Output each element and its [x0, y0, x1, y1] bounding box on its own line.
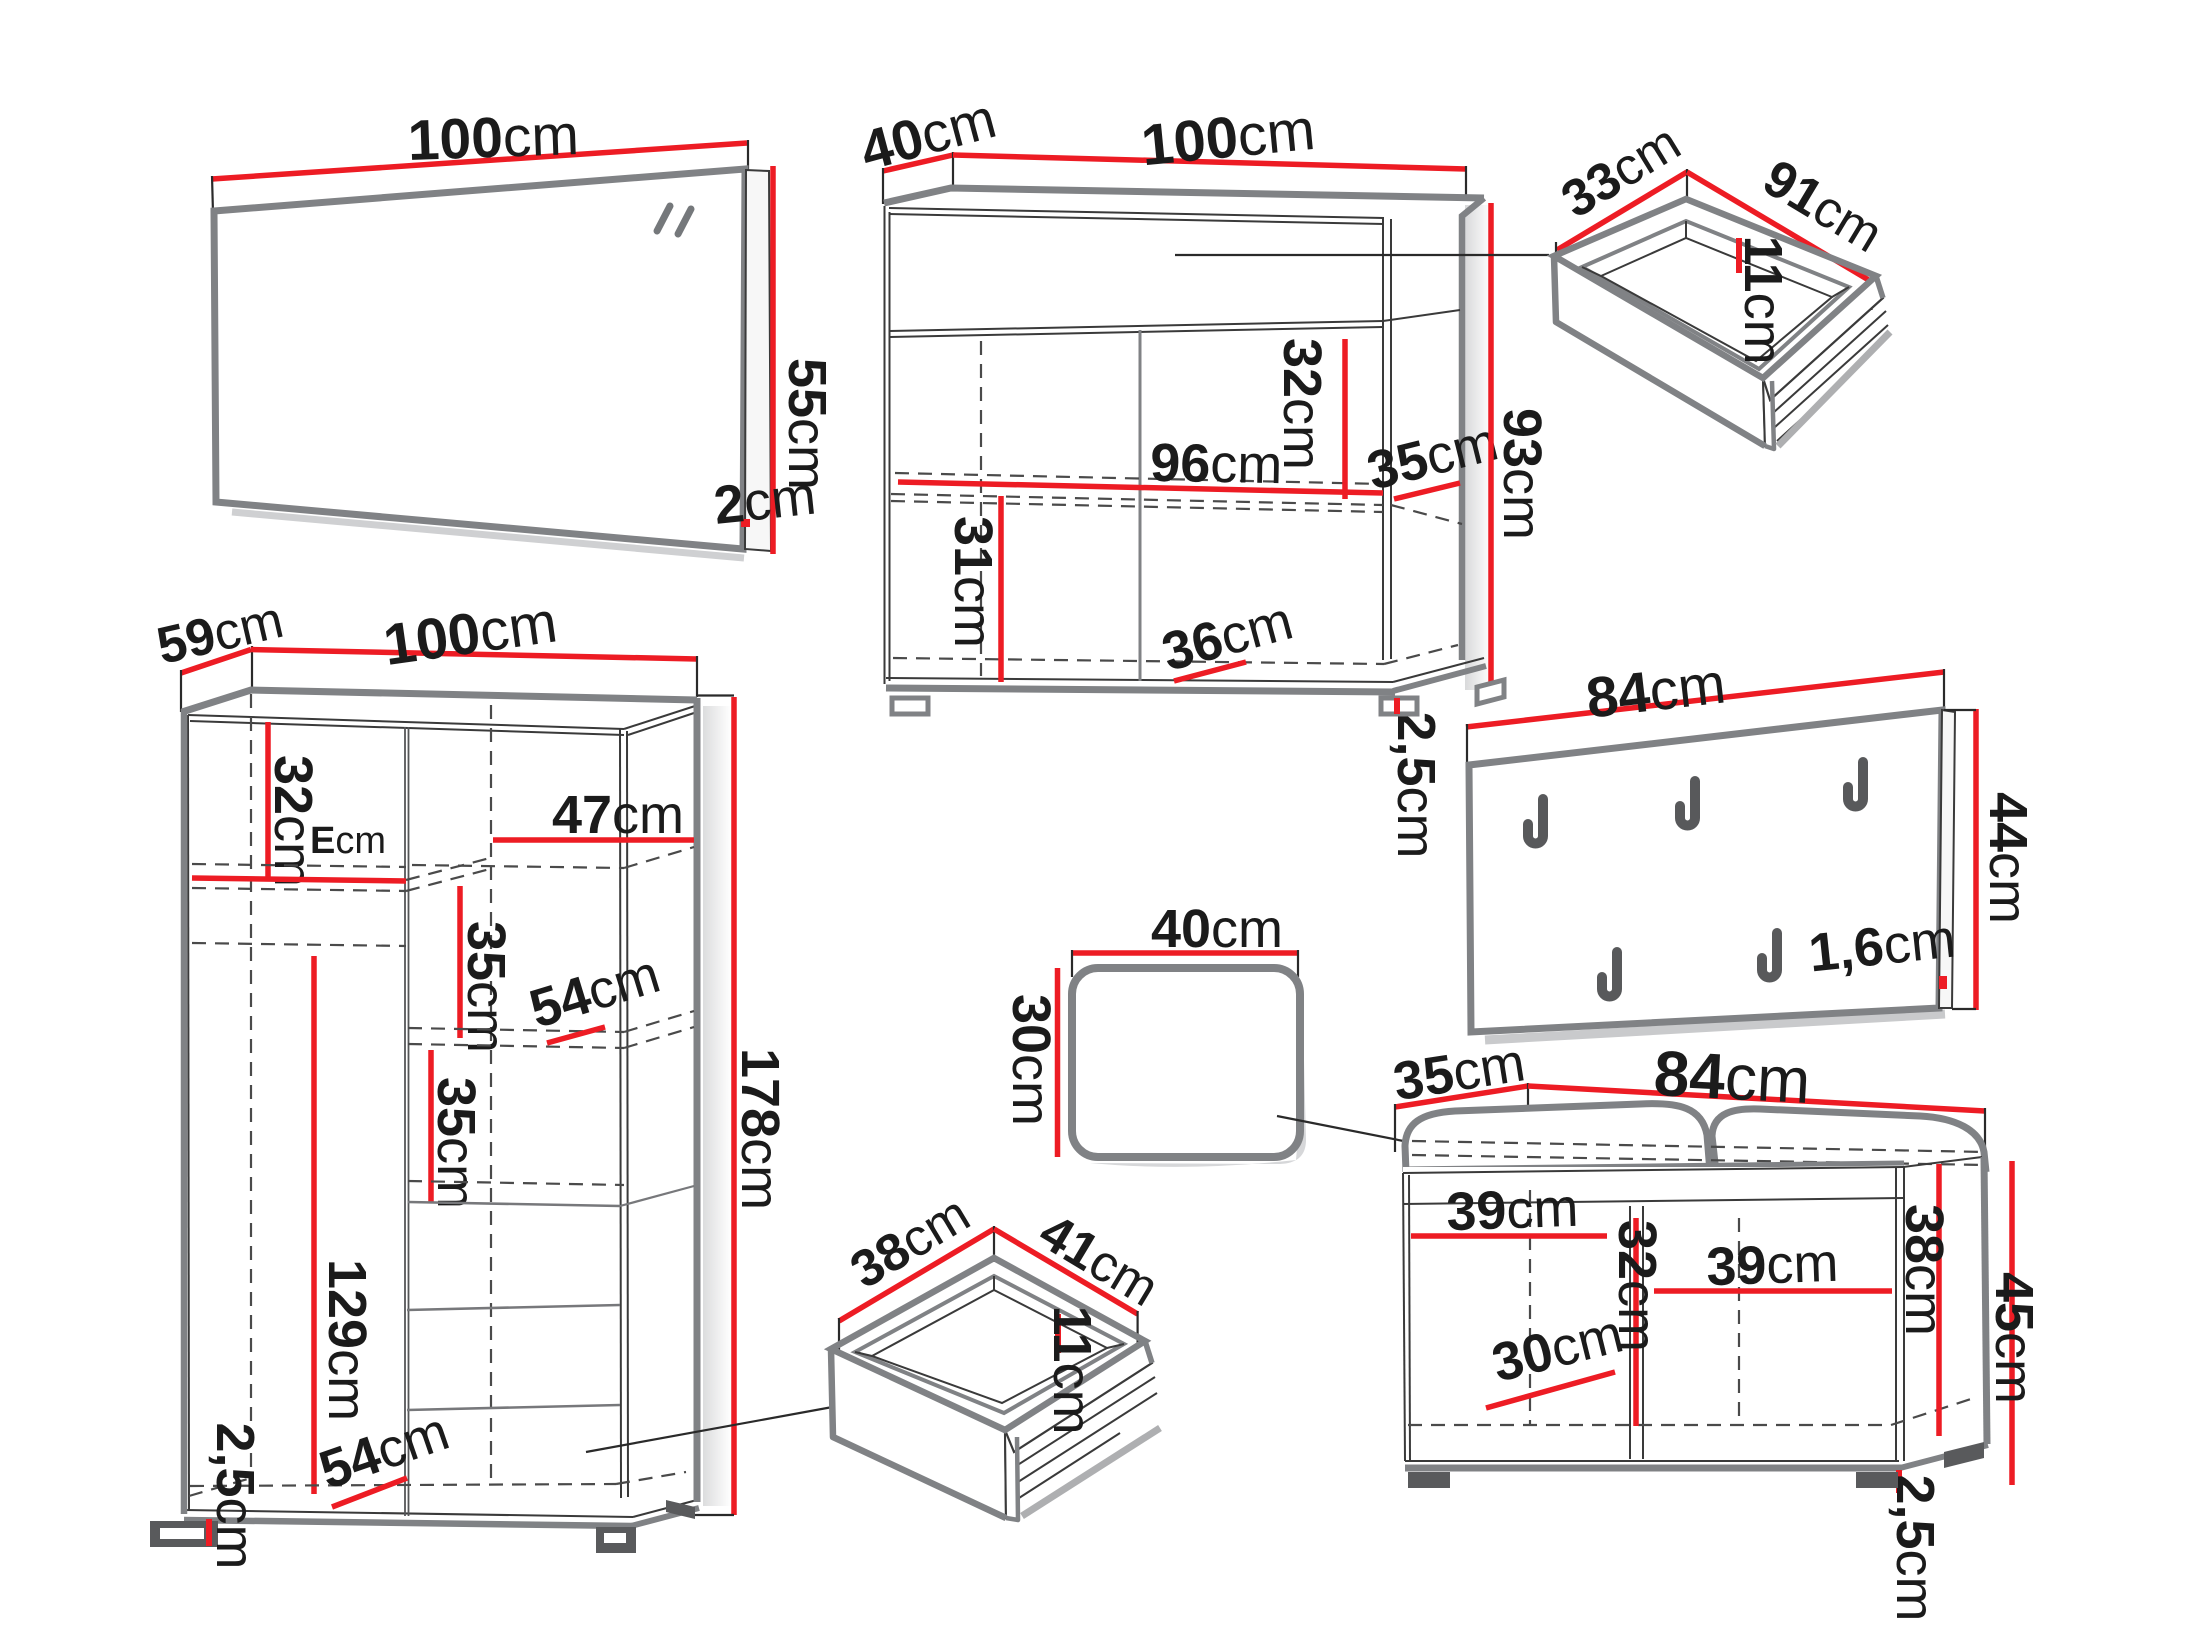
- svg-text:Ecm: Ecm: [310, 820, 386, 862]
- svg-text:2,5cm: 2,5cm: [1885, 1474, 1945, 1621]
- svg-text:11cm: 11cm: [1733, 235, 1793, 364]
- svg-text:129cm: 129cm: [317, 1259, 377, 1421]
- svg-text:178cm: 178cm: [730, 1048, 790, 1210]
- svg-text:47cm: 47cm: [552, 785, 684, 845]
- svg-text:96cm: 96cm: [1150, 433, 1283, 495]
- svg-text:35cm: 35cm: [426, 1077, 486, 1209]
- svg-text:2,5cm: 2,5cm: [205, 1422, 265, 1569]
- svg-text:31cm: 31cm: [943, 516, 1003, 648]
- svg-text:100cm: 100cm: [407, 103, 580, 173]
- svg-text:38cm: 38cm: [1894, 1204, 1954, 1336]
- svg-text:35cm: 35cm: [456, 921, 516, 1053]
- svg-text:45cm: 45cm: [1984, 1272, 2044, 1404]
- svg-text:2cm: 2cm: [711, 466, 819, 536]
- svg-text:39cm: 39cm: [1705, 1233, 1839, 1298]
- svg-text:44cm: 44cm: [1978, 792, 2038, 924]
- svg-text:40cm: 40cm: [1151, 899, 1283, 959]
- svg-text:93cm: 93cm: [1492, 408, 1552, 540]
- svg-text:32cm: 32cm: [1272, 338, 1332, 470]
- svg-text:30cm: 30cm: [1001, 994, 1061, 1126]
- svg-text:39cm: 39cm: [1445, 1178, 1579, 1243]
- svg-text:11cm: 11cm: [1042, 1305, 1102, 1434]
- svg-text:2,5cm: 2,5cm: [1386, 711, 1446, 858]
